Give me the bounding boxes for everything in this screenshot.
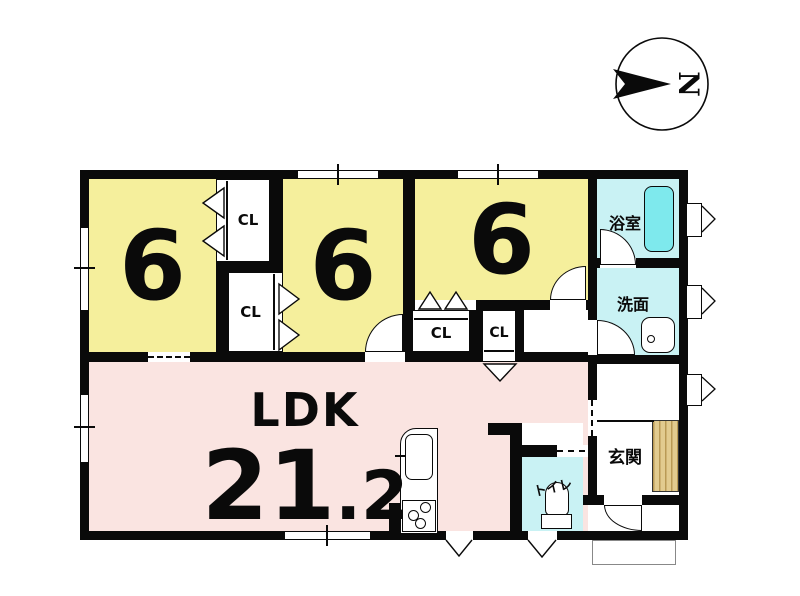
bath-name: 浴室	[599, 209, 651, 239]
window-left-bedroom	[80, 228, 89, 310]
window-entrance-small	[686, 374, 702, 406]
compass-arrow	[613, 69, 671, 99]
sliding-door-bedroom-left	[148, 356, 190, 358]
ldk-size-main: 21	[202, 438, 336, 534]
closet-a-right-wall	[270, 170, 283, 272]
entrance-step-board	[652, 420, 679, 492]
closet-d-label: CL	[482, 312, 516, 354]
window-wash-small	[686, 285, 702, 319]
closet-cd-divider	[470, 310, 482, 352]
washbasin	[641, 317, 675, 353]
wash-bottom-wall	[588, 355, 688, 364]
closet-a-label: CL	[226, 179, 270, 262]
closet-c-label: CL	[412, 314, 470, 352]
door-opening-washroom	[588, 320, 597, 355]
sliding-door-hall	[591, 400, 593, 436]
backdoor-opening-toilet	[528, 531, 557, 540]
door-opening-bedroom-middle	[365, 352, 405, 362]
entrance-name: 玄関	[597, 443, 653, 473]
sliding-door-toilet	[557, 450, 585, 452]
ldk-size-sub: .2	[335, 463, 408, 531]
casement-window-mark	[702, 206, 715, 232]
entrance-porch	[592, 540, 676, 565]
closet-b-left-wall	[216, 262, 228, 352]
ldk-east-wall-upper	[588, 170, 597, 320]
backdoor-swing-mark	[528, 540, 556, 557]
window-tick	[74, 426, 95, 428]
backdoor-swing-mark	[446, 540, 472, 556]
door-opening-bedroom-right	[550, 300, 586, 310]
toilet-top-wall	[522, 445, 557, 457]
bedroom-middle-size: 6	[283, 179, 403, 352]
entrance-door-wall-right	[642, 495, 688, 505]
floorplan-page: N 6 6 6 LDK 21.2 浴室 洗面 玄関 トイレ CL CL CL C…	[0, 0, 800, 596]
door-arc-entrance	[604, 505, 642, 531]
washroom-name: 洗面	[600, 290, 666, 320]
closet-d-right-wall	[516, 310, 524, 354]
ldk-size: 21.2	[125, 438, 485, 533]
toilet-stub-wall	[488, 423, 510, 435]
bedroom-left-size: 6	[89, 179, 216, 352]
closet-b-label: CL	[228, 272, 273, 352]
casement-window-mark	[702, 288, 715, 314]
toilet-west-wall	[510, 423, 522, 540]
toilet-tank	[541, 514, 572, 529]
casement-window-mark	[702, 377, 715, 401]
window-left-ldk	[80, 395, 89, 462]
outer-wall-left	[80, 170, 89, 540]
window-bath-small	[686, 203, 702, 237]
closet-b-door-line	[273, 274, 275, 350]
ldk-name: LDK	[145, 385, 465, 435]
washbasin-drain	[647, 335, 655, 343]
entrance-door-wall-left	[583, 495, 604, 505]
bedroom-right-size: 6	[415, 179, 588, 300]
compass-north-label: N	[670, 70, 706, 98]
entrance-step-line	[597, 420, 654, 422]
bedroom-right-vestibule	[516, 310, 588, 354]
